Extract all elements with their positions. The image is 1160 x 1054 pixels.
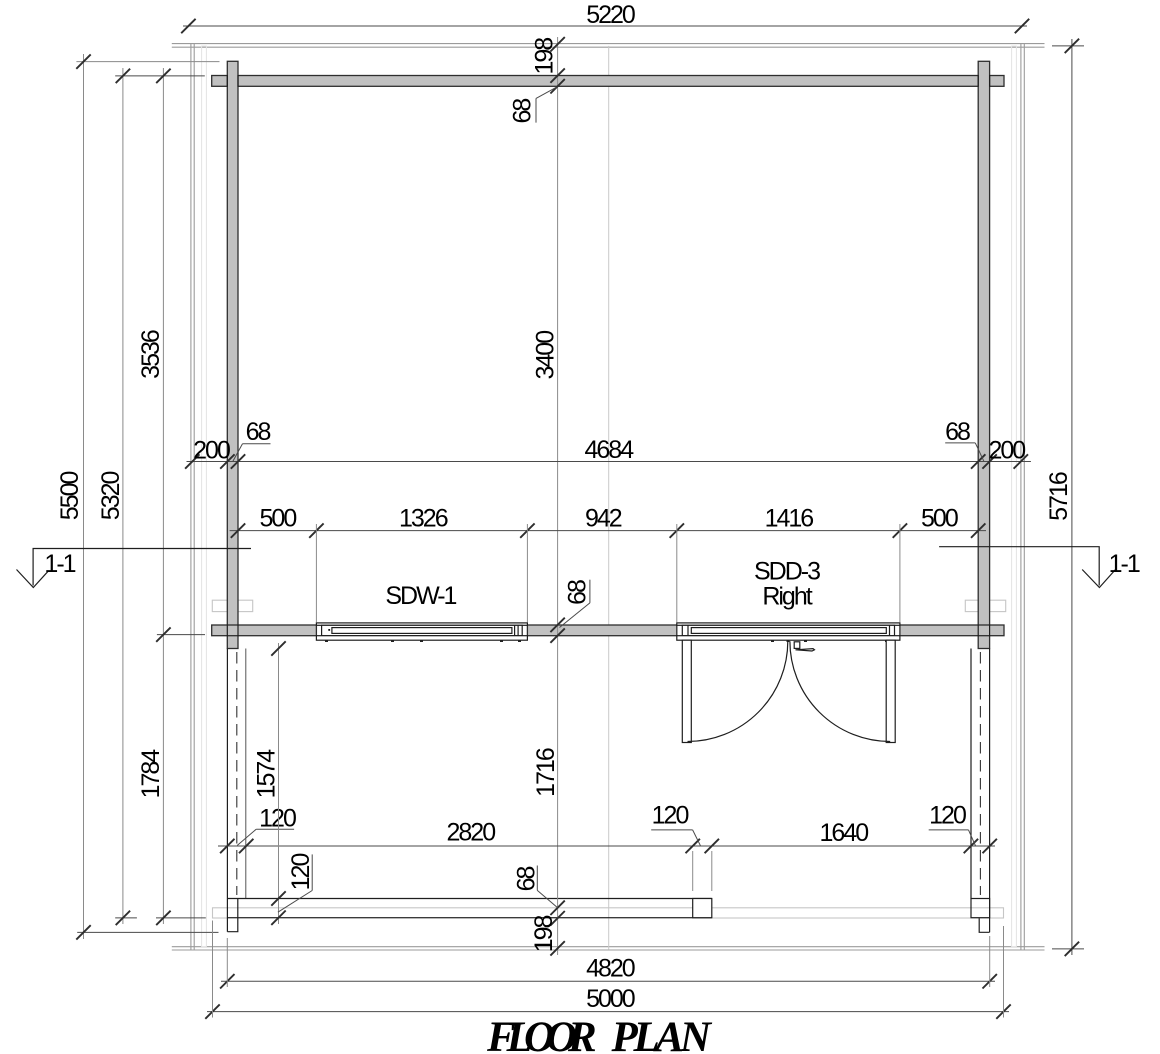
- svg-text:200: 200: [193, 436, 230, 464]
- svg-text:5320: 5320: [97, 472, 125, 521]
- svg-text:5500: 5500: [56, 472, 84, 521]
- svg-text:5716: 5716: [1045, 472, 1073, 521]
- svg-text:68: 68: [563, 580, 591, 605]
- svg-text:1640: 1640: [819, 819, 868, 847]
- svg-text:200: 200: [988, 436, 1025, 464]
- svg-text:5000: 5000: [586, 985, 635, 1013]
- svg-text:1326: 1326: [399, 504, 448, 532]
- svg-text:1716: 1716: [532, 748, 560, 797]
- svg-text:942: 942: [585, 504, 622, 532]
- svg-text:120: 120: [287, 854, 315, 891]
- svg-text:2820: 2820: [446, 819, 495, 847]
- svg-text:1416: 1416: [765, 504, 814, 532]
- svg-text:198: 198: [530, 915, 558, 952]
- svg-text:68: 68: [512, 867, 540, 892]
- svg-text:5220: 5220: [586, 1, 635, 29]
- svg-text:68: 68: [509, 99, 537, 124]
- svg-text:1-1: 1-1: [1109, 550, 1140, 578]
- svg-text:500: 500: [260, 504, 297, 532]
- svg-text:1574: 1574: [253, 749, 281, 799]
- svg-text:Right: Right: [762, 582, 812, 610]
- svg-text:120: 120: [652, 802, 689, 830]
- svg-text:SDD-3: SDD-3: [754, 558, 820, 586]
- svg-text:1-1: 1-1: [44, 550, 75, 578]
- svg-text:4820: 4820: [586, 955, 635, 983]
- svg-text:120: 120: [259, 804, 296, 832]
- svg-text:68: 68: [246, 418, 271, 446]
- svg-text:68: 68: [945, 418, 970, 446]
- svg-text:PLAN: PLAN: [611, 1014, 713, 1054]
- svg-text:4684: 4684: [584, 436, 634, 464]
- svg-text:FLOOR: FLOOR: [486, 1014, 596, 1054]
- svg-text:3400: 3400: [531, 331, 559, 380]
- svg-text:3536: 3536: [137, 330, 165, 379]
- svg-text:1784: 1784: [137, 749, 165, 799]
- svg-text:500: 500: [921, 504, 958, 532]
- svg-text:SDW-1: SDW-1: [385, 582, 456, 610]
- svg-text:198: 198: [531, 38, 559, 75]
- svg-text:120: 120: [929, 802, 966, 830]
